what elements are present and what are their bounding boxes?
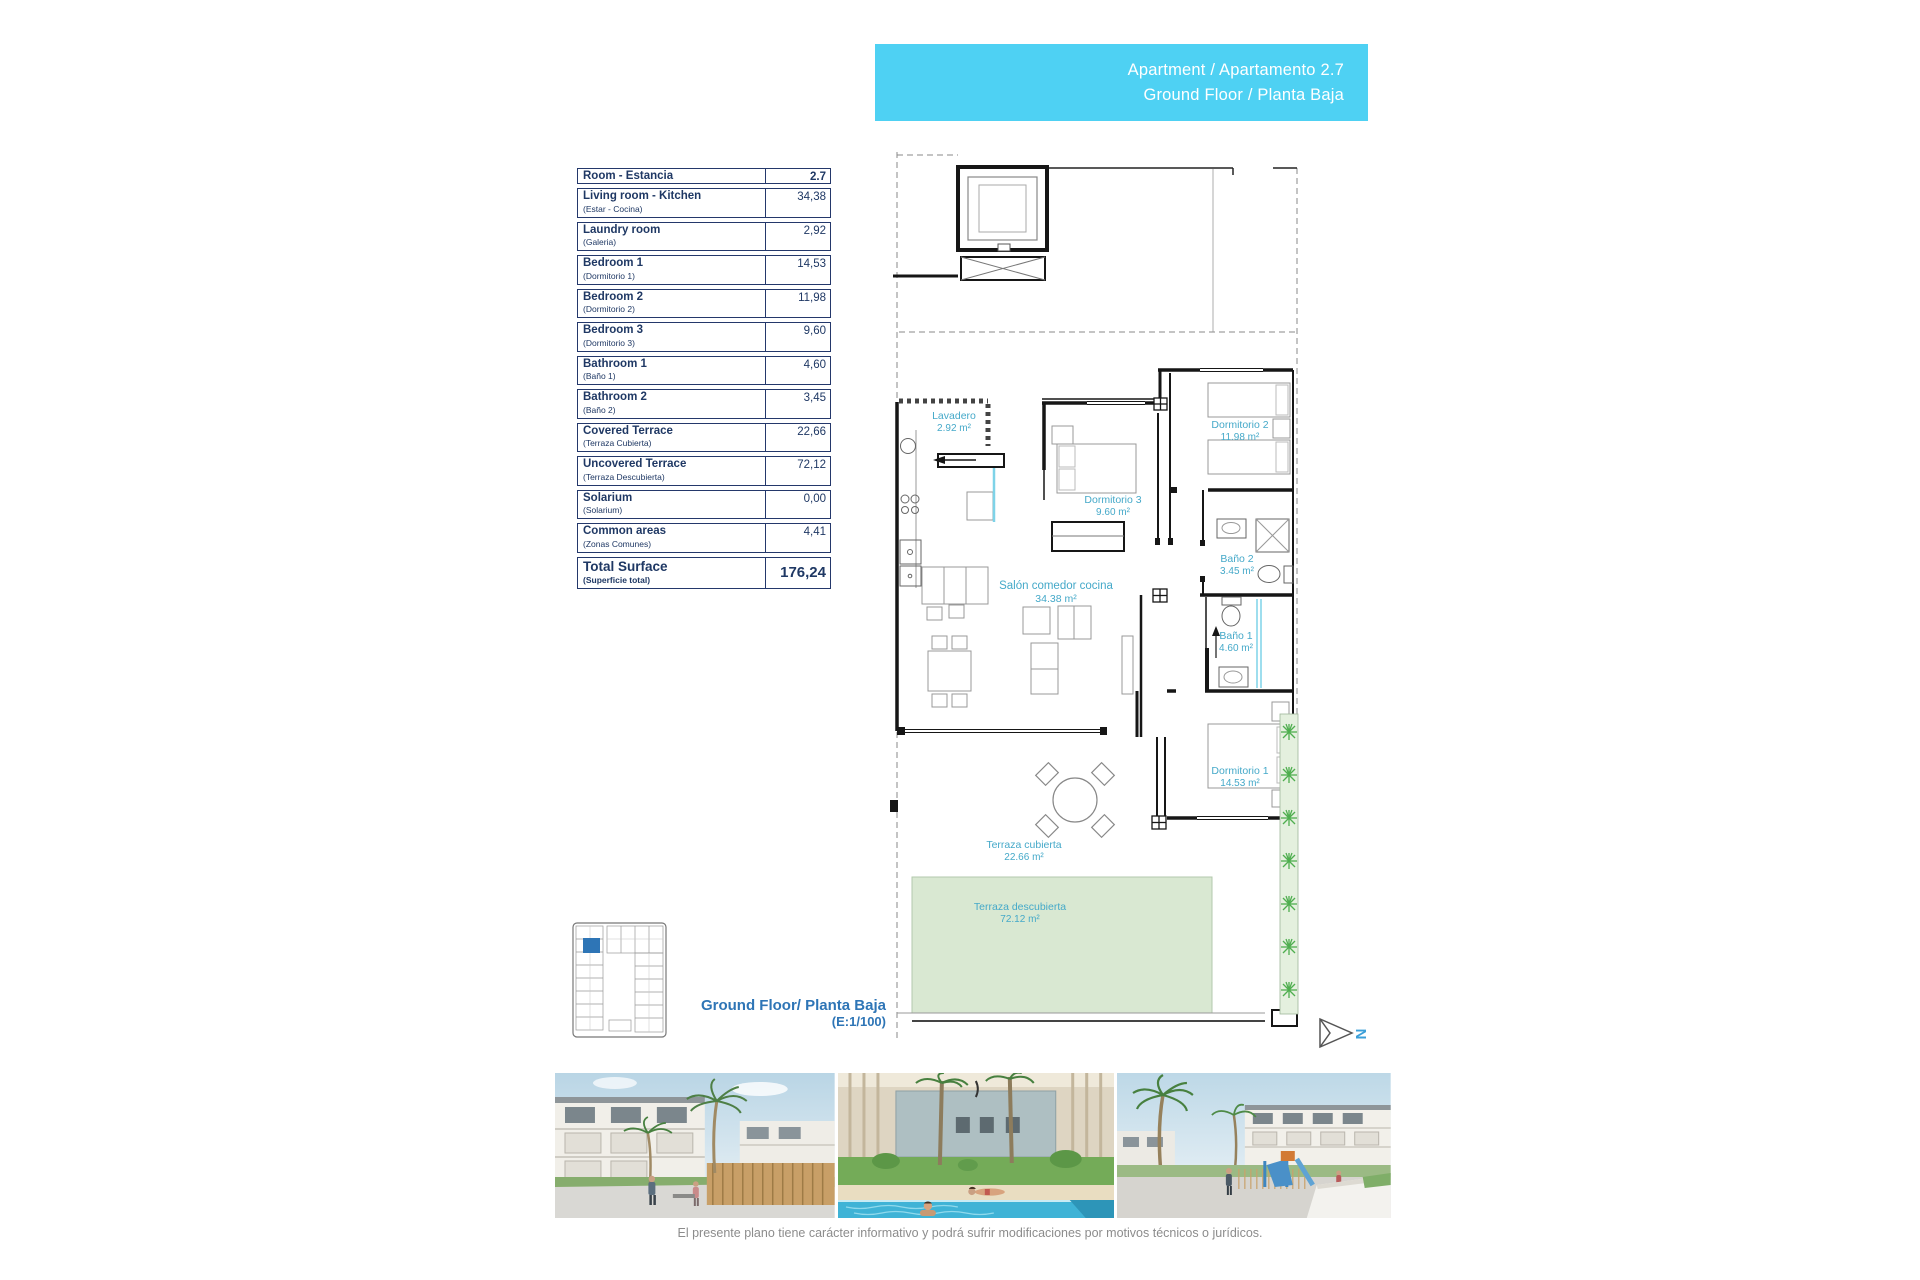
room-labels: Lavadero 2.92 m² Dormitorio 3 9.60 m² Do… — [932, 410, 1269, 925]
north-letter: N — [1352, 1029, 1369, 1040]
svg-text:22.66 m²: 22.66 m² — [1004, 852, 1044, 863]
apartment-floor-subtitle: Ground Floor / Planta Baja — [875, 83, 1344, 108]
bedroom1-furniture — [1208, 702, 1290, 807]
room-area-value: 34,38 — [766, 189, 830, 217]
room-area-value: 0,00 — [766, 491, 830, 519]
svg-text:72.12 m²: 72.12 m² — [1000, 914, 1040, 925]
floor-scale-label: Ground Floor/ Planta Baja (E:1/100) — [690, 997, 886, 1029]
bedroom3-furniture — [1052, 426, 1136, 551]
keyplan-unit-highlight — [583, 938, 600, 953]
room-name-es: (Dormitorio 3) — [583, 338, 765, 349]
label-bano2: Baño 2 — [1220, 553, 1253, 565]
dining-set — [928, 636, 971, 707]
table-row: Laundry room(Galeria) 2,92 — [577, 222, 831, 252]
photo-playground — [1117, 1073, 1391, 1218]
svg-text:34.38 m²: 34.38 m² — [1035, 593, 1077, 605]
elevator-core — [893, 167, 1047, 280]
room-area-table: Room - Estancia 2.7 Living room - Kitche… — [577, 168, 831, 593]
total-area-value: 176,24 — [766, 558, 830, 588]
table-row: Uncovered Terrace(Terraza Descubierta) 7… — [577, 456, 831, 486]
svg-text:4.60 m²: 4.60 m² — [1219, 643, 1254, 654]
legal-disclaimer: El presente plano tiene carácter informa… — [520, 1226, 1420, 1240]
apartment-header-banner: Apartment / Apartamento 2.7 Ground Floor… — [875, 44, 1368, 121]
room-name-en: Uncovered Terrace — [583, 458, 765, 472]
svg-text:2.92 m²: 2.92 m² — [937, 423, 972, 434]
room-area-value: 72,12 — [766, 457, 830, 485]
render-photo-strip — [555, 1073, 1391, 1218]
room-area-value: 22,66 — [766, 424, 830, 452]
table-header-unit: 2.7 — [766, 169, 830, 183]
room-area-value: 4,60 — [766, 357, 830, 385]
label-lavadero: Lavadero — [932, 410, 976, 422]
label-terraza-cubierta: Terraza cubierta — [986, 839, 1061, 851]
label-salon: Salón comedor cocina — [999, 580, 1113, 592]
table-header-row: Room - Estancia 2.7 — [577, 168, 831, 184]
room-name-es: (Baño 1) — [583, 371, 765, 382]
room-area-value: 11,98 — [766, 290, 830, 318]
label-dormitorio2: Dormitorio 2 — [1211, 419, 1268, 431]
table-row: Bathroom 2(Baño 2) 3,45 — [577, 389, 831, 419]
table-row: Solarium(Solarium) 0,00 — [577, 490, 831, 520]
terrace-table-set — [1036, 763, 1115, 838]
room-area-value: 2,92 — [766, 223, 830, 251]
floor-name: Ground Floor/ Planta Baja — [690, 997, 886, 1014]
svg-text:3.45 m²: 3.45 m² — [1220, 566, 1255, 577]
table-header-room: Room - Estancia — [578, 169, 766, 183]
table-row: Covered Terrace(Terraza Cubierta) 22,66 — [577, 423, 831, 453]
label-dormitorio1: Dormitorio 1 — [1211, 765, 1268, 777]
room-name-es: (Zonas Comunes) — [583, 539, 765, 550]
table-row: Living room - Kitchen(Estar - Cocina) 34… — [577, 188, 831, 218]
north-arrow-icon: N — [1320, 1019, 1369, 1047]
svg-text:14.53 m²: 14.53 m² — [1220, 778, 1260, 789]
room-name-en: Bathroom 1 — [583, 358, 765, 372]
table-row: Bedroom 1(Dormitorio 1) 14,53 — [577, 255, 831, 285]
room-name-es: (Terraza Descubierta) — [583, 472, 765, 483]
label-bano1: Baño 1 — [1219, 630, 1252, 642]
table-row: Bedroom 3(Dormitorio 3) 9,60 — [577, 322, 831, 352]
svg-text:9.60 m²: 9.60 m² — [1096, 507, 1131, 518]
room-name-en: Living room - Kitchen — [583, 190, 765, 204]
room-area-value: 3,45 — [766, 390, 830, 418]
room-name-es: (Dormitorio 1) — [583, 271, 765, 282]
sofa-set — [1023, 606, 1133, 694]
room-name-en: Bathroom 2 — [583, 391, 765, 405]
plan-scale: (E:1/100) — [690, 1014, 886, 1029]
room-area-value: 9,60 — [766, 323, 830, 351]
room-area-value: 4,41 — [766, 524, 830, 552]
svg-text:11.98 m²: 11.98 m² — [1221, 432, 1260, 443]
floor-plan: N Lavadero 2.92 m² Dormitorio 3 9.60 m² … — [890, 150, 1382, 1050]
room-name-en: Bedroom 1 — [583, 257, 765, 271]
label-terraza-descubierta: Terraza descubierta — [974, 901, 1066, 913]
total-name-en: Total Surface — [583, 559, 765, 575]
room-name-es: (Solarium) — [583, 505, 765, 516]
room-name-es: (Estar - Cocina) — [583, 204, 765, 215]
room-name-es: (Terraza Cubierta) — [583, 438, 765, 449]
common-area-walls — [1047, 168, 1297, 332]
table-row: Bathroom 1(Baño 1) 4,60 — [577, 356, 831, 386]
table-total-row: Total Surface(Superficie total) 176,24 — [577, 557, 831, 589]
room-name-en: Common areas — [583, 525, 765, 539]
table-row: Common areas(Zonas Comunes) 4,41 — [577, 523, 831, 553]
total-name-es: (Superficie total) — [583, 575, 765, 586]
photo-pool-area — [838, 1073, 1115, 1218]
uncovered-terrace-area — [897, 877, 1297, 1026]
label-dormitorio3: Dormitorio 3 — [1084, 494, 1141, 506]
planter-strip — [1280, 714, 1298, 1014]
room-area-value: 14,53 — [766, 256, 830, 284]
room-name-es: (Dormitorio 2) — [583, 304, 765, 315]
table-row: Bedroom 2(Dormitorio 2) 11,98 — [577, 289, 831, 319]
room-name-en: Laundry room — [583, 224, 765, 238]
room-name-es: (Galeria) — [583, 237, 765, 248]
room-name-en: Bedroom 2 — [583, 291, 765, 305]
room-name-en: Solarium — [583, 492, 765, 506]
apartment-title: Apartment / Apartamento 2.7 — [875, 58, 1344, 83]
room-name-en: Bedroom 3 — [583, 324, 765, 338]
room-name-es: (Baño 2) — [583, 405, 765, 416]
building-key-plan — [570, 920, 670, 1042]
room-name-en: Covered Terrace — [583, 425, 765, 439]
photo-apartments-street — [555, 1073, 835, 1218]
